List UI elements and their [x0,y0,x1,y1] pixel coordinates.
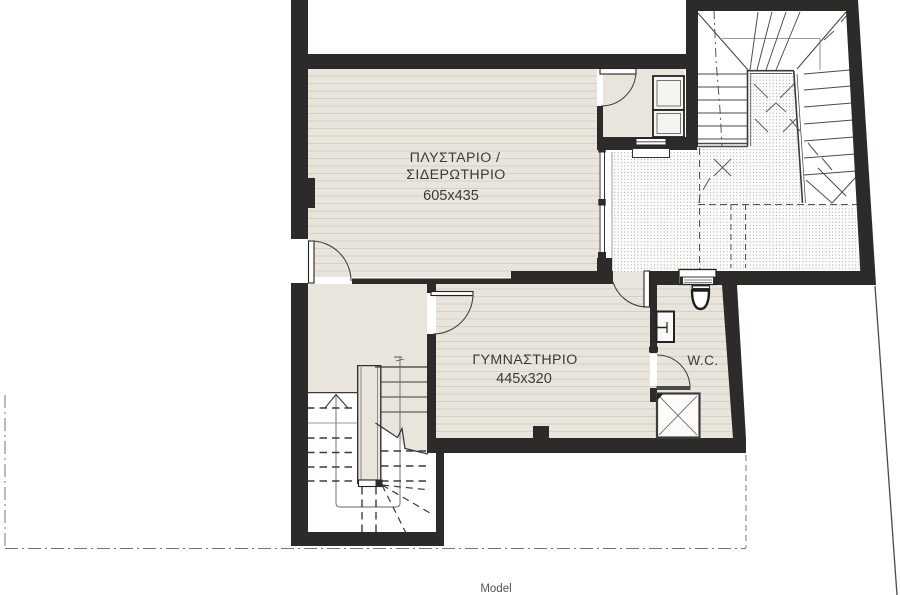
svg-text:ΠΛΥΣΤΑΡΙΟ /: ΠΛΥΣΤΑΡΙΟ / [410,150,501,166]
svg-text:445x320: 445x320 [496,371,552,387]
svg-text:ΓΥΜΝΑΣΤΗΡΙΟ: ΓΥΜΝΑΣΤΗΡΙΟ [472,352,577,368]
svg-text:W.C.: W.C. [687,353,718,368]
svg-text:605x435: 605x435 [423,188,479,204]
svg-text:ΣΙΔΕΡΩΤΗΡΙΟ: ΣΙΔΕΡΩΤΗΡΙΟ [406,167,505,183]
svg-text:Model: Model [480,583,511,595]
